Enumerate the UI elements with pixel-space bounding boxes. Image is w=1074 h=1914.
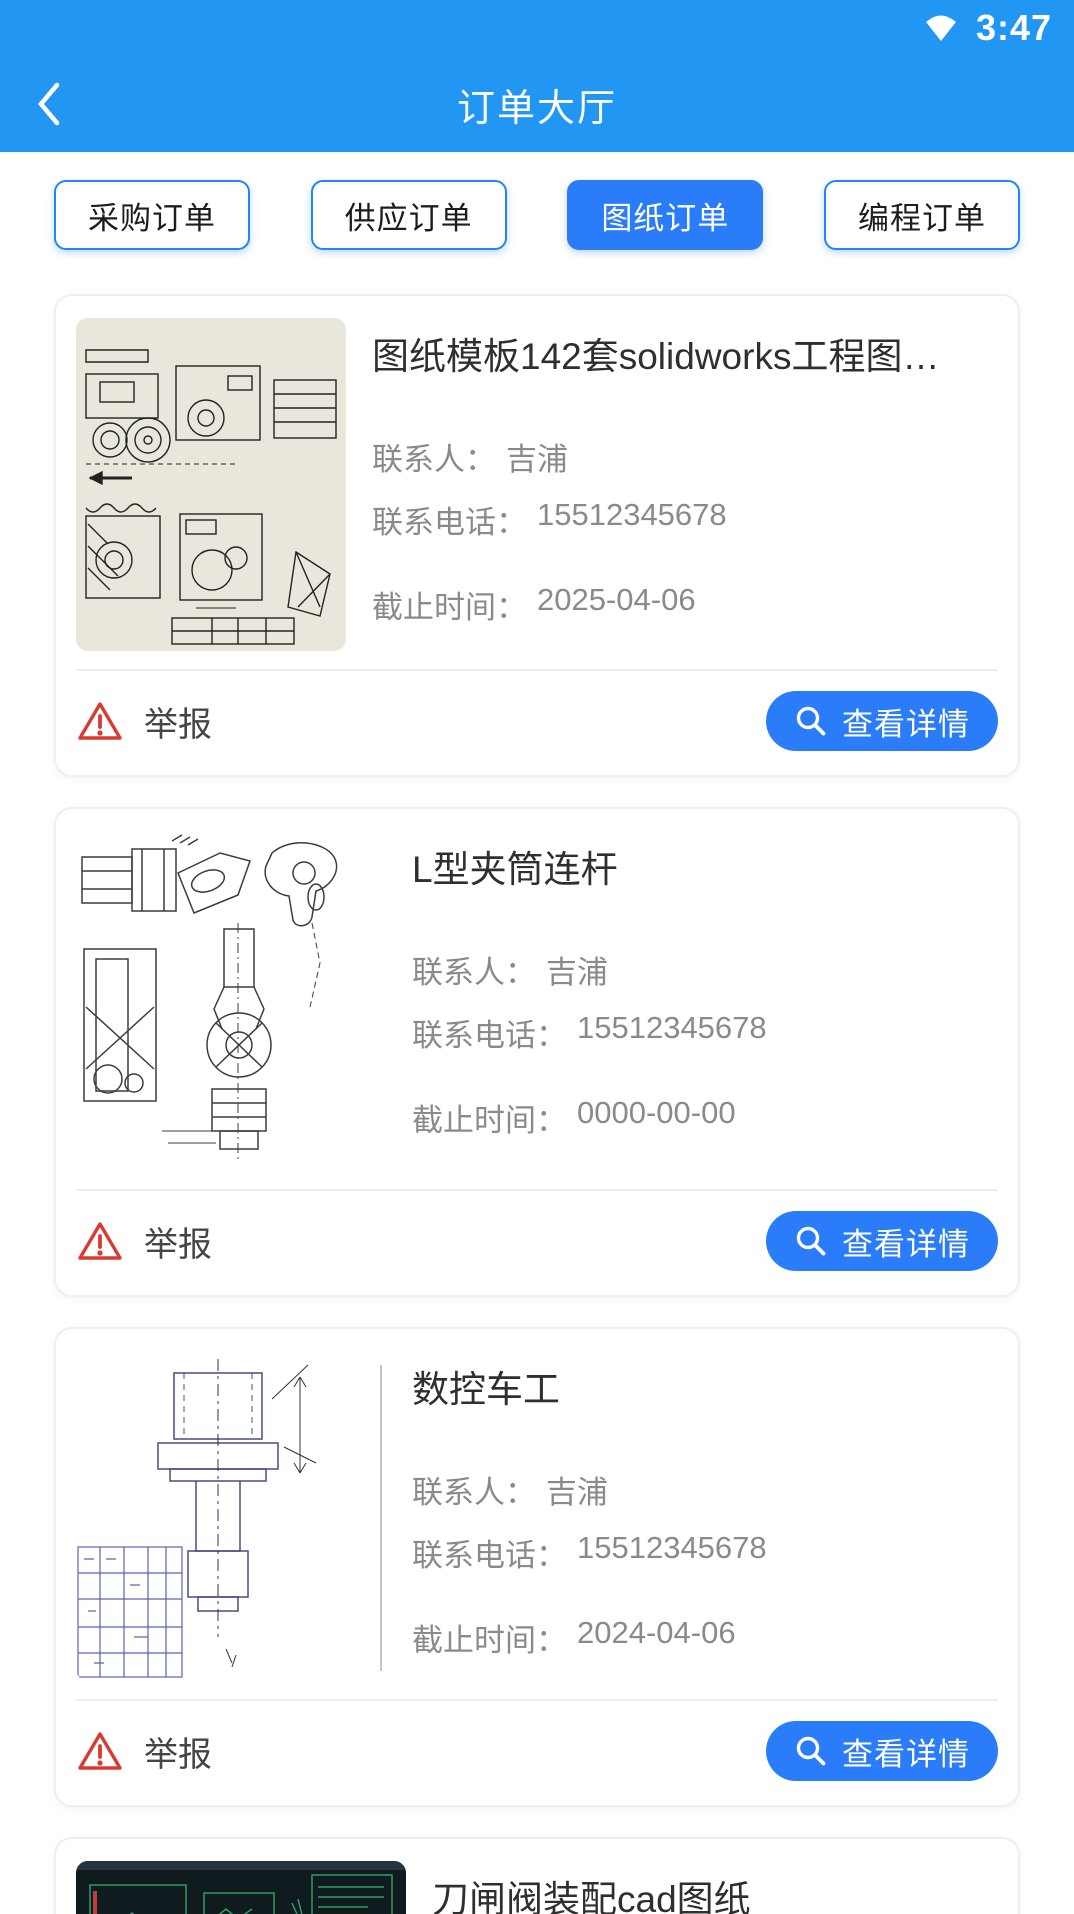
deadline-row: 截止时间： 0000-00-00 [412,1095,998,1140]
contact-value: 吉浦 [546,1467,608,1512]
deadline-value: 2025-04-06 [537,582,696,627]
contact-value: 吉浦 [546,947,608,992]
tab-drawing-orders[interactable]: 图纸订单 [567,180,763,250]
phone-value: 15512345678 [577,1010,767,1055]
phone-row: 联系电话： 15512345678 [372,497,998,542]
warning-triangle-icon [76,1729,124,1773]
order-card: L型夹筒连杆 联系人： 吉浦 联系电话： 15512345678 截止时间： 0… [54,807,1020,1297]
order-thumbnail-blueprint [76,318,346,651]
order-thumbnail-cad [76,1351,386,1681]
warning-triangle-icon [76,699,124,743]
order-card: 数控车工 联系人： 吉浦 联系电话： 15512345678 截止时间： 202… [54,1327,1020,1807]
phone-row: 联系电话： 15512345678 [412,1010,998,1055]
phone-row: 联系电话： 15512345678 [412,1530,998,1575]
report-button[interactable]: 举报 [76,697,212,746]
report-button[interactable]: 举报 [76,1727,212,1776]
contact-row: 联系人： 吉浦 [372,434,998,479]
order-list: 图纸模板142套solidworks工程图… 联系人： 吉浦 联系电话： 155… [0,250,1074,1914]
order-card: 图纸模板142套solidworks工程图… 联系人： 吉浦 联系电话： 155… [54,294,1020,777]
order-hall-screen: 3:47 订单大厅 采购订单 供应订单 图纸订单 编程订单 [0,0,1074,1914]
view-details-button[interactable]: 查看详情 [766,1721,998,1781]
page-title: 订单大厅 [457,77,617,132]
order-title: 数控车工 [412,1359,998,1413]
view-details-button[interactable]: 查看详情 [766,691,998,751]
deadline-value: 2024-04-06 [577,1615,736,1660]
order-card: 刀闸阀装配cad图纸 [54,1837,1020,1914]
nav-bar: 订单大厅 [0,56,1074,152]
magnifier-icon [794,1224,828,1258]
magnifier-icon [794,1734,828,1768]
contact-value: 吉浦 [506,434,568,479]
order-title: 图纸模板142套solidworks工程图… [372,326,998,380]
phone-value: 15512345678 [537,497,727,542]
status-time: 3:47 [976,7,1052,49]
order-thumbnail-dark-cad [76,1861,406,1914]
tab-supply-orders[interactable]: 供应订单 [311,180,507,250]
magnifier-icon [794,704,828,738]
back-button[interactable] [26,72,70,136]
order-title: L型夹筒连杆 [412,839,998,893]
tab-programming-orders[interactable]: 编程订单 [824,180,1020,250]
order-type-tabs: 采购订单 供应订单 图纸订单 编程订单 [0,152,1074,250]
view-details-button[interactable]: 查看详情 [766,1211,998,1271]
wifi-icon [922,13,960,43]
tab-purchase-orders[interactable]: 采购订单 [54,180,250,250]
order-thumbnail-sketch [76,831,386,1171]
deadline-value: 0000-00-00 [577,1095,736,1140]
report-button[interactable]: 举报 [76,1217,212,1266]
deadline-row: 截止时间： 2024-04-06 [412,1615,998,1660]
contact-row: 联系人： 吉浦 [412,1467,998,1512]
status-bar: 3:47 [0,0,1074,56]
deadline-row: 截止时间： 2025-04-06 [372,582,998,627]
chevron-left-icon [34,80,62,128]
contact-row: 联系人： 吉浦 [412,947,998,992]
order-title: 刀闸阀装配cad图纸 [432,1869,998,1914]
warning-triangle-icon [76,1219,124,1263]
phone-value: 15512345678 [577,1530,767,1575]
